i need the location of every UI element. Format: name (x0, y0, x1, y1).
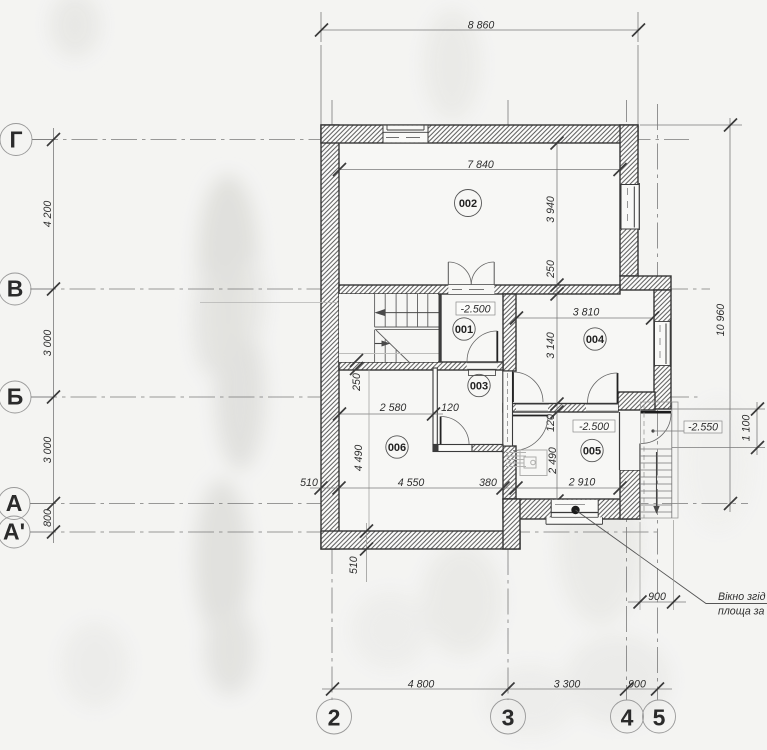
svg-text:2: 2 (328, 705, 341, 731)
svg-text:-2.500: -2.500 (579, 421, 609, 433)
svg-text:4: 4 (621, 705, 634, 731)
svg-text:510: 510 (348, 556, 360, 574)
svg-text:Вікно згід: Вікно згід (718, 591, 766, 603)
svg-text:4 800: 4 800 (408, 679, 435, 691)
svg-text:3 000: 3 000 (42, 437, 54, 464)
svg-text:510: 510 (300, 477, 318, 489)
svg-text:003: 003 (470, 381, 488, 393)
svg-text:Г: Г (9, 127, 22, 153)
svg-text:3 000: 3 000 (42, 330, 54, 357)
svg-text:250: 250 (351, 373, 363, 392)
svg-text:8 860: 8 860 (468, 20, 495, 32)
svg-text:3 810: 3 810 (573, 307, 600, 319)
svg-text:2 490: 2 490 (547, 447, 559, 475)
svg-text:900: 900 (648, 591, 666, 603)
svg-text:250: 250 (545, 260, 557, 279)
svg-text:-2.500: -2.500 (460, 304, 490, 316)
svg-text:120: 120 (545, 414, 557, 432)
svg-text:380: 380 (479, 477, 497, 489)
svg-text:В: В (7, 276, 24, 302)
svg-text:7 840: 7 840 (467, 159, 494, 171)
svg-text:001: 001 (455, 324, 473, 336)
svg-text:3: 3 (502, 705, 515, 731)
svg-text:1 100: 1 100 (741, 415, 753, 442)
svg-text:Б: Б (7, 384, 24, 410)
svg-text:2 580: 2 580 (379, 402, 407, 414)
svg-text:4 490: 4 490 (353, 445, 365, 472)
svg-text:005: 005 (583, 446, 601, 458)
svg-text:900: 900 (628, 679, 646, 691)
svg-text:800: 800 (42, 509, 54, 527)
svg-text:3 140: 3 140 (545, 332, 557, 359)
svg-text:А: А (6, 490, 23, 516)
svg-text:площа за: площа за (718, 606, 764, 618)
svg-text:5: 5 (653, 705, 666, 731)
svg-text:10 960: 10 960 (715, 304, 727, 337)
svg-text:А': А' (3, 519, 25, 545)
svg-text:3 940: 3 940 (545, 196, 557, 223)
svg-text:120: 120 (441, 402, 459, 414)
svg-text:3 300: 3 300 (554, 679, 581, 691)
svg-text:2 910: 2 910 (568, 477, 596, 489)
svg-text:4 200: 4 200 (42, 201, 54, 228)
svg-text:006: 006 (388, 442, 406, 454)
svg-text:004: 004 (586, 334, 605, 346)
svg-text:4 550: 4 550 (398, 477, 425, 489)
svg-text:-2.550: -2.550 (688, 422, 718, 434)
svg-text:002: 002 (459, 198, 477, 210)
